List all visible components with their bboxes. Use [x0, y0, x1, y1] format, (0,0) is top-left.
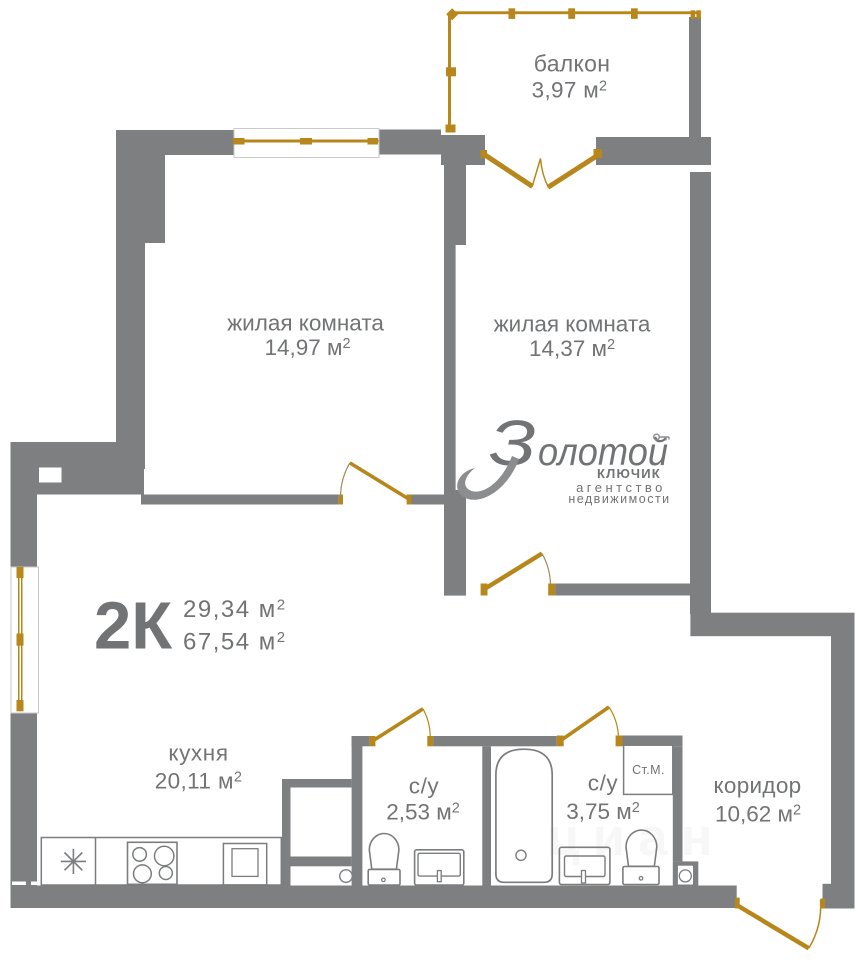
svg-text:недвижимости: недвижимости	[568, 492, 670, 506]
svg-text:10,62 м2: 10,62 м2	[715, 802, 801, 827]
svg-text:14,97 м2: 14,97 м2	[264, 335, 350, 360]
svg-text:29,34 м2: 29,34 м2	[183, 596, 287, 623]
svg-text:коридор: коридор	[714, 773, 802, 798]
svg-text:жилая комната: жилая комната	[227, 311, 384, 336]
svg-text:балкон: балкон	[534, 51, 610, 77]
svg-text:жилая комната: жилая комната	[494, 312, 651, 337]
svg-text:Ст.М.: Ст.М.	[632, 763, 665, 777]
svg-text:циан: циан	[547, 808, 726, 867]
svg-text:3,97 м2: 3,97 м2	[532, 78, 608, 103]
svg-text:2,53 м2: 2,53 м2	[386, 800, 460, 825]
svg-text:кухня: кухня	[168, 741, 228, 766]
svg-text:14,37 м2: 14,37 м2	[529, 336, 615, 361]
svg-text:КЛЮЧИК: КЛЮЧИК	[597, 466, 661, 481]
svg-text:с/у: с/у	[409, 774, 440, 799]
svg-text:67,54 м2: 67,54 м2	[183, 629, 287, 656]
svg-text:20,11 м2: 20,11 м2	[155, 769, 243, 794]
svg-text:2К: 2К	[94, 589, 172, 664]
svg-text:с/у: с/у	[588, 771, 619, 796]
